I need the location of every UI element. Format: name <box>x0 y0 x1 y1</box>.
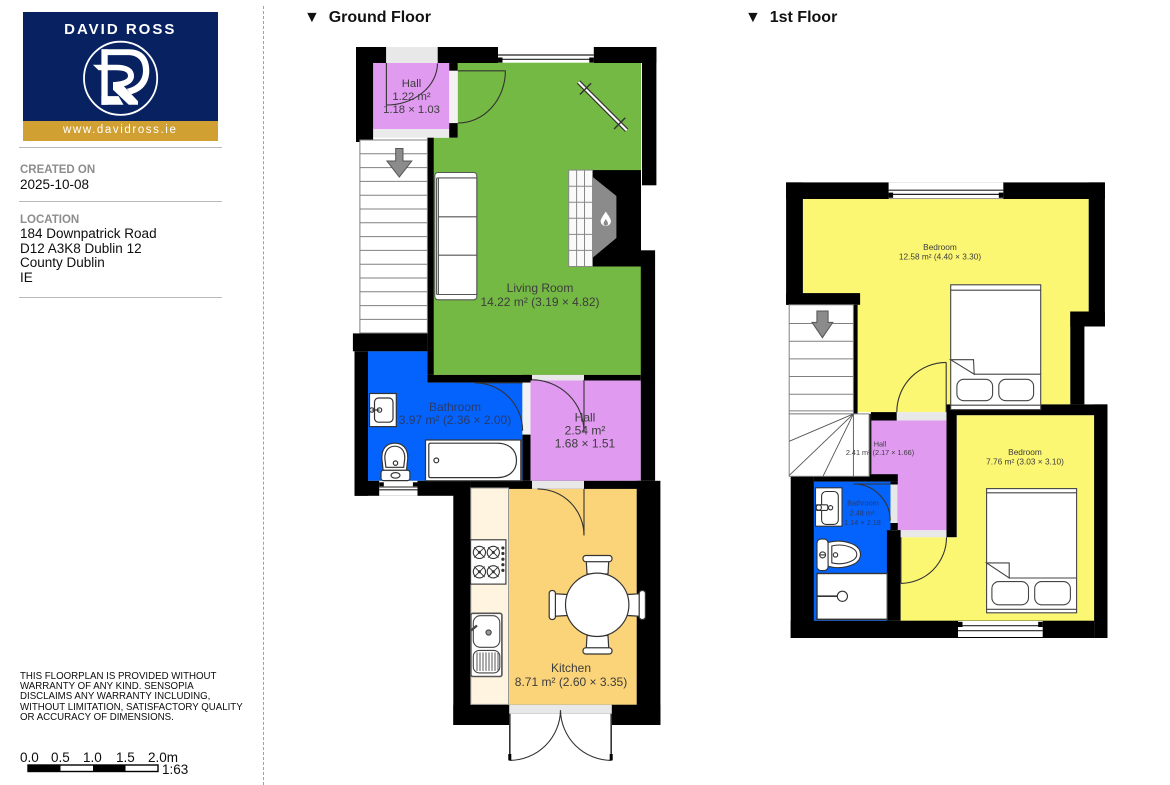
svg-text:1.18 × 1.03: 1.18 × 1.03 <box>383 104 440 116</box>
svg-text:1.68 × 1.51: 1.68 × 1.51 <box>555 437 616 451</box>
svg-text:1.22 m²: 1.22 m² <box>392 91 431 103</box>
svg-text:Kitchen: Kitchen <box>551 661 591 675</box>
svg-text:1.14 × 2.18: 1.14 × 2.18 <box>844 518 881 527</box>
svg-text:Hall: Hall <box>402 78 421 90</box>
svg-text:Bedroom: Bedroom <box>1008 447 1042 457</box>
svg-text:2.48 m²: 2.48 m² <box>850 509 875 518</box>
svg-text:7.76 m² (3.03 × 3.10): 7.76 m² (3.03 × 3.10) <box>986 457 1064 467</box>
svg-text:Bedroom: Bedroom <box>923 242 957 252</box>
svg-text:2.41 m² (2.17 × 1.66): 2.41 m² (2.17 × 1.66) <box>846 448 914 457</box>
svg-text:3.97 m² (2.36 × 2.00): 3.97 m² (2.36 × 2.00) <box>399 413 511 427</box>
svg-text:Bathroom: Bathroom <box>429 400 481 414</box>
svg-text:12.58 m² (4.40 × 3.30): 12.58 m² (4.40 × 3.30) <box>899 252 982 262</box>
svg-text:14.22 m² (3.19 × 4.82): 14.22 m² (3.19 × 4.82) <box>480 295 599 309</box>
svg-text:8.71 m² (2.60 × 3.35): 8.71 m² (2.60 × 3.35) <box>515 675 627 689</box>
svg-text:Hall: Hall <box>575 411 596 425</box>
svg-text:2.54 m²: 2.54 m² <box>565 424 606 438</box>
svg-text:Bathroom: Bathroom <box>847 499 879 508</box>
svg-text:Living Room: Living Room <box>507 281 574 295</box>
